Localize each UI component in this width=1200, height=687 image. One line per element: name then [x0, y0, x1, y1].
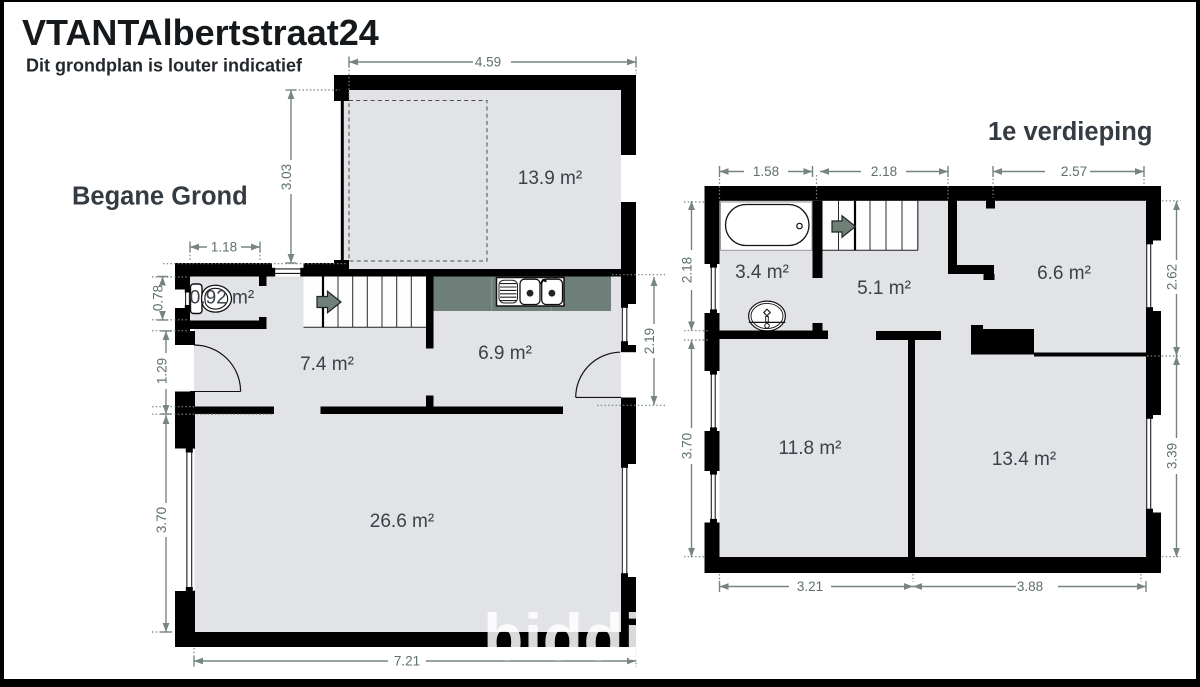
svg-text:0.92 m²: 0.92 m²	[190, 288, 254, 309]
svg-text:2.57: 2.57	[1061, 164, 1087, 179]
svg-text:3.88: 3.88	[1017, 579, 1043, 594]
svg-text:2.18: 2.18	[871, 164, 897, 179]
svg-text:2.62: 2.62	[1165, 264, 1180, 290]
svg-text:1.29: 1.29	[155, 358, 170, 384]
svg-text:2.18: 2.18	[680, 257, 695, 283]
svg-text:0.78: 0.78	[151, 285, 166, 311]
svg-text:7.21: 7.21	[394, 654, 420, 669]
svg-text:5.1 m²: 5.1 m²	[857, 278, 911, 299]
svg-text:11.8 m²: 11.8 m²	[778, 438, 841, 459]
svg-text:3.39: 3.39	[1165, 443, 1180, 469]
svg-text:3.4 m²: 3.4 m²	[735, 262, 789, 283]
svg-text:6.6 m²: 6.6 m²	[1037, 263, 1091, 284]
svg-text:biddit: biddit	[483, 600, 666, 674]
svg-text:1.18: 1.18	[211, 240, 237, 255]
svg-text:3.70: 3.70	[680, 433, 695, 459]
svg-text:4.59: 4.59	[475, 55, 501, 70]
svg-text:2.19: 2.19	[642, 328, 657, 354]
svg-text:VTANTAlbertstraat24: VTANTAlbertstraat24	[22, 12, 379, 53]
svg-text:3.03: 3.03	[279, 164, 294, 190]
svg-text:3.70: 3.70	[154, 507, 169, 533]
svg-text:1e verdieping: 1e verdieping	[988, 118, 1152, 146]
svg-text:1.58: 1.58	[753, 164, 779, 179]
svg-text:Begane Grond: Begane Grond	[72, 183, 248, 211]
svg-text:3.21: 3.21	[797, 579, 823, 594]
svg-text:13.9 m²: 13.9 m²	[518, 168, 582, 189]
svg-text:13.4 m²: 13.4 m²	[992, 449, 1056, 470]
svg-text:6.9 m²: 6.9 m²	[478, 343, 532, 364]
svg-text:7.4 m²: 7.4 m²	[300, 354, 354, 375]
svg-text:Dit grondplan is louter indica: Dit grondplan is louter indicatief	[26, 56, 303, 76]
svg-text:26.6 m²: 26.6 m²	[370, 511, 434, 532]
